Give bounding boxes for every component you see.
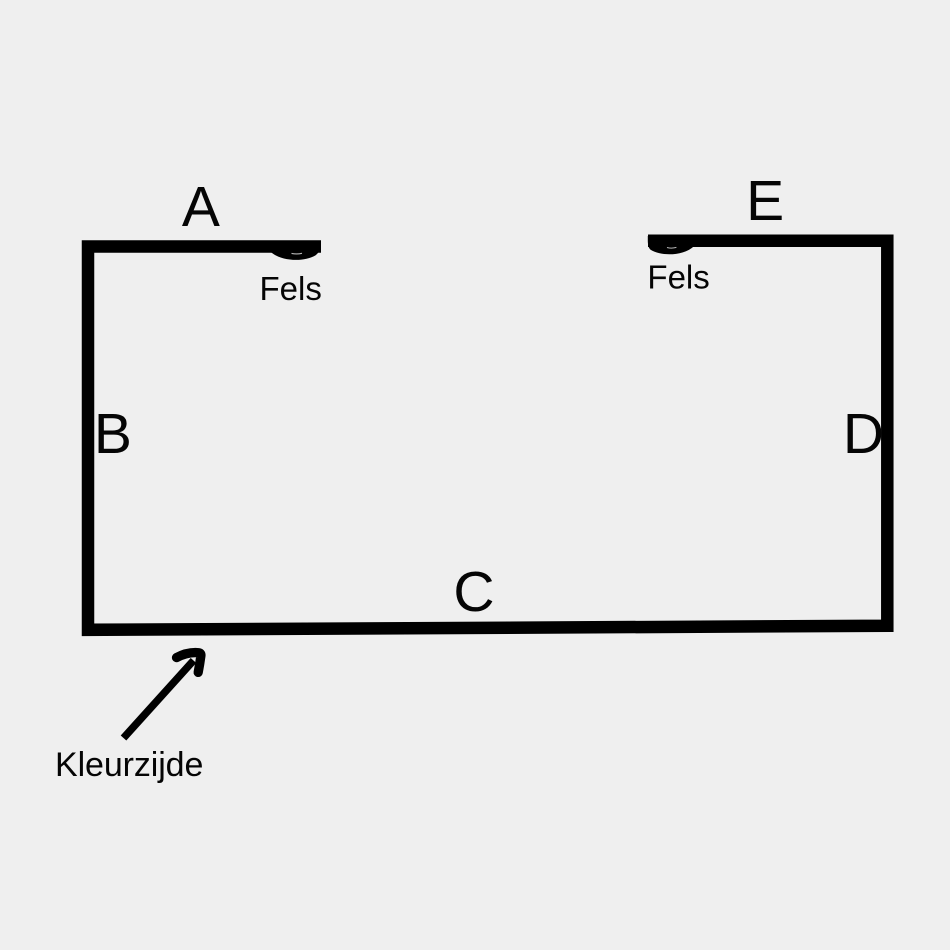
svg-text:Fels: Fels bbox=[260, 270, 322, 307]
svg-text:E: E bbox=[746, 169, 784, 233]
svg-text:A: A bbox=[182, 175, 220, 239]
svg-text:Kleurzijde: Kleurzijde bbox=[55, 746, 203, 784]
svg-text:C: C bbox=[453, 560, 494, 624]
svg-text:B: B bbox=[94, 402, 132, 466]
svg-text:Fels: Fels bbox=[647, 259, 709, 296]
svg-text:D: D bbox=[843, 402, 884, 466]
